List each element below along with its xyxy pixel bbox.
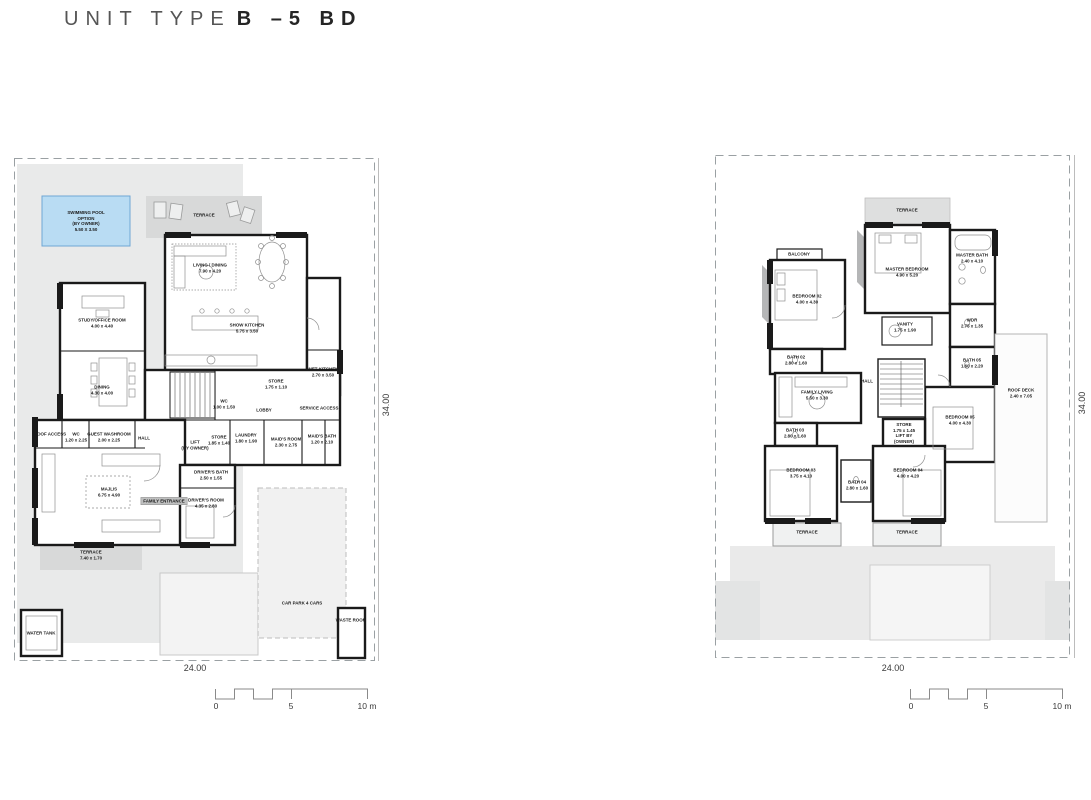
width-dimension-left: 24.00 — [184, 663, 207, 673]
service-access-label: SERVICE ACCESS — [300, 405, 339, 411]
bedroom-05-label: BEDROOM 05 4.00 x 4.30 — [945, 414, 974, 425]
terrace-left-label: TERRACE — [796, 529, 817, 535]
bedroom-04-label: BEDROOM 04 4.00 x 4.20 — [893, 467, 922, 478]
scale-tick-0: 0 — [214, 701, 219, 711]
scale-tick-10: 10 m — [358, 701, 377, 711]
title-light: UNIT TYPE — [64, 8, 231, 30]
terrace-right-label: TERRACE — [896, 529, 917, 535]
wardrobe-label: WDR 2.75 x 1.35 — [961, 317, 983, 328]
show-kitchen-label: SHOW KITCHEN 5.75 x 3.50 — [230, 322, 265, 333]
store-pantry-label: STORE 1.75 x 1.10 — [265, 378, 287, 389]
lobby-label: LOBBY — [256, 407, 271, 413]
scale-tick-5: 5 — [289, 701, 294, 711]
scale-tick-10: 10 m — [1053, 701, 1072, 711]
waste-room-label: WASTE ROOM — [336, 617, 367, 623]
drivers-room-label: DRIVER'S ROOM 4.35 x 2.80 — [188, 497, 224, 508]
guest-washroom-label: GUEST WASHROOM 2.00 x 2.25 — [87, 431, 130, 442]
car-park-label: CAR PARK 4 CARS — [282, 600, 322, 606]
bath-03-label: BATH 03 2.80 x 1.60 — [784, 427, 806, 438]
study-office-label: STUDY/OFFICE ROOM 4.00 x 4.40 — [78, 317, 125, 328]
ground-floor-plan: SWIMMING POOL OPTION (BY OWNER) 5.50 X 3… — [14, 158, 375, 661]
water-tank-label: WATER TANK — [27, 630, 56, 636]
bedroom-03-label: BEDROOM 03 3.75 x 4.10 — [786, 467, 815, 478]
height-dimension-left: 34.00 — [381, 394, 391, 417]
drivers-bath-label: DRIVER'S BATH 2.50 x 1.55 — [194, 469, 228, 480]
family-entrance-label: FAMILY ENTRANCE — [141, 497, 188, 505]
terrace-top-label: TERRACE — [193, 212, 214, 218]
living-dining-label: LIVING / DINING 7.90 x 4.20 — [193, 262, 227, 273]
roof-deck-label: ROOF DECK 2.40 x 7.05 — [1008, 387, 1035, 398]
pool-label: SWIMMING POOL OPTION (BY OWNER) 5.50 X 3… — [67, 210, 104, 232]
roof-access-label: ROOF ACCESS — [34, 431, 66, 437]
page-title: UNIT TYPEB –5 BD — [64, 8, 362, 31]
majlis-label: MAJLIS 6.75 x 4.90 — [98, 486, 120, 497]
wc-guest-label: WC 1.20 x 2.25 — [65, 431, 87, 442]
store-lift-label: STORE 1.75 x 1.45 LIFT BY (OWNER) — [893, 422, 915, 444]
title-bold: B –5 BD — [237, 8, 363, 30]
bath-05-label: BATH 05 1.60 x 2.20 — [961, 357, 983, 368]
laundry-label: LAUNDRY 1.80 x 1.90 — [235, 432, 257, 443]
terrace-majlis-label: TERRACE 7.40 x 1.70 — [80, 549, 102, 560]
first-floor-plan: TERRACEMASTER BEDROOM 4.90 x 5.20BALCONY… — [715, 155, 1070, 658]
scale-bar-left: 0 5 10 m — [215, 686, 385, 716]
master-bath-label: MASTER BATH 2.40 x 4.10 — [956, 252, 988, 263]
store-label: STORE 1.85 x 1.40 — [208, 434, 230, 445]
dimension-line-left — [378, 158, 379, 661]
master-bedroom-label: MASTER BEDROOM 4.90 x 5.20 — [886, 266, 929, 277]
scale-bar-right: 0 5 10 m — [910, 686, 1080, 716]
hall-label: HALL — [861, 378, 873, 384]
bedroom-02-label: BEDROOM 02 4.00 x 4.30 — [792, 293, 821, 304]
bath-04-label: BATH 04 2.80 x 1.60 — [846, 479, 868, 490]
maids-bath-label: MAID'S BATH 1.20 x 2.10 — [308, 433, 336, 444]
height-dimension-right: 34.00 — [1077, 392, 1087, 415]
wc-stair-label: WC 1.00 x 1.50 — [213, 398, 235, 409]
dimension-line-right — [1074, 155, 1075, 658]
scale-tick-5: 5 — [984, 701, 989, 711]
scale-tick-0: 0 — [909, 701, 914, 711]
terrace-master-label: TERRACE — [896, 207, 917, 213]
scale-bar-left-glyph — [215, 686, 375, 700]
scale-bar-right-glyph — [910, 686, 1070, 700]
bath-02-label: BATH 02 2.80 x 1.60 — [785, 354, 807, 365]
width-dimension-right: 24.00 — [882, 663, 905, 673]
maids-room-label: MAID'S ROOM 2.30 x 2.75 — [271, 436, 301, 447]
dining-label: DINING 4.30 x 4.00 — [91, 384, 113, 395]
vanity-label: VANITY 1.75 x 1.90 — [894, 321, 916, 332]
family-living-label: FAMILY LIVING 5.50 x 3.30 — [801, 389, 833, 400]
lift-label: LIFT (BY OWNER) — [181, 439, 208, 450]
balcony-label: BALCONY — [788, 251, 810, 257]
first-floor-drawing — [715, 155, 1070, 658]
hall-label: HALL — [138, 435, 150, 441]
wet-kitchen-label: WET KITCHEN 2.70 x 3.50 — [308, 366, 339, 377]
